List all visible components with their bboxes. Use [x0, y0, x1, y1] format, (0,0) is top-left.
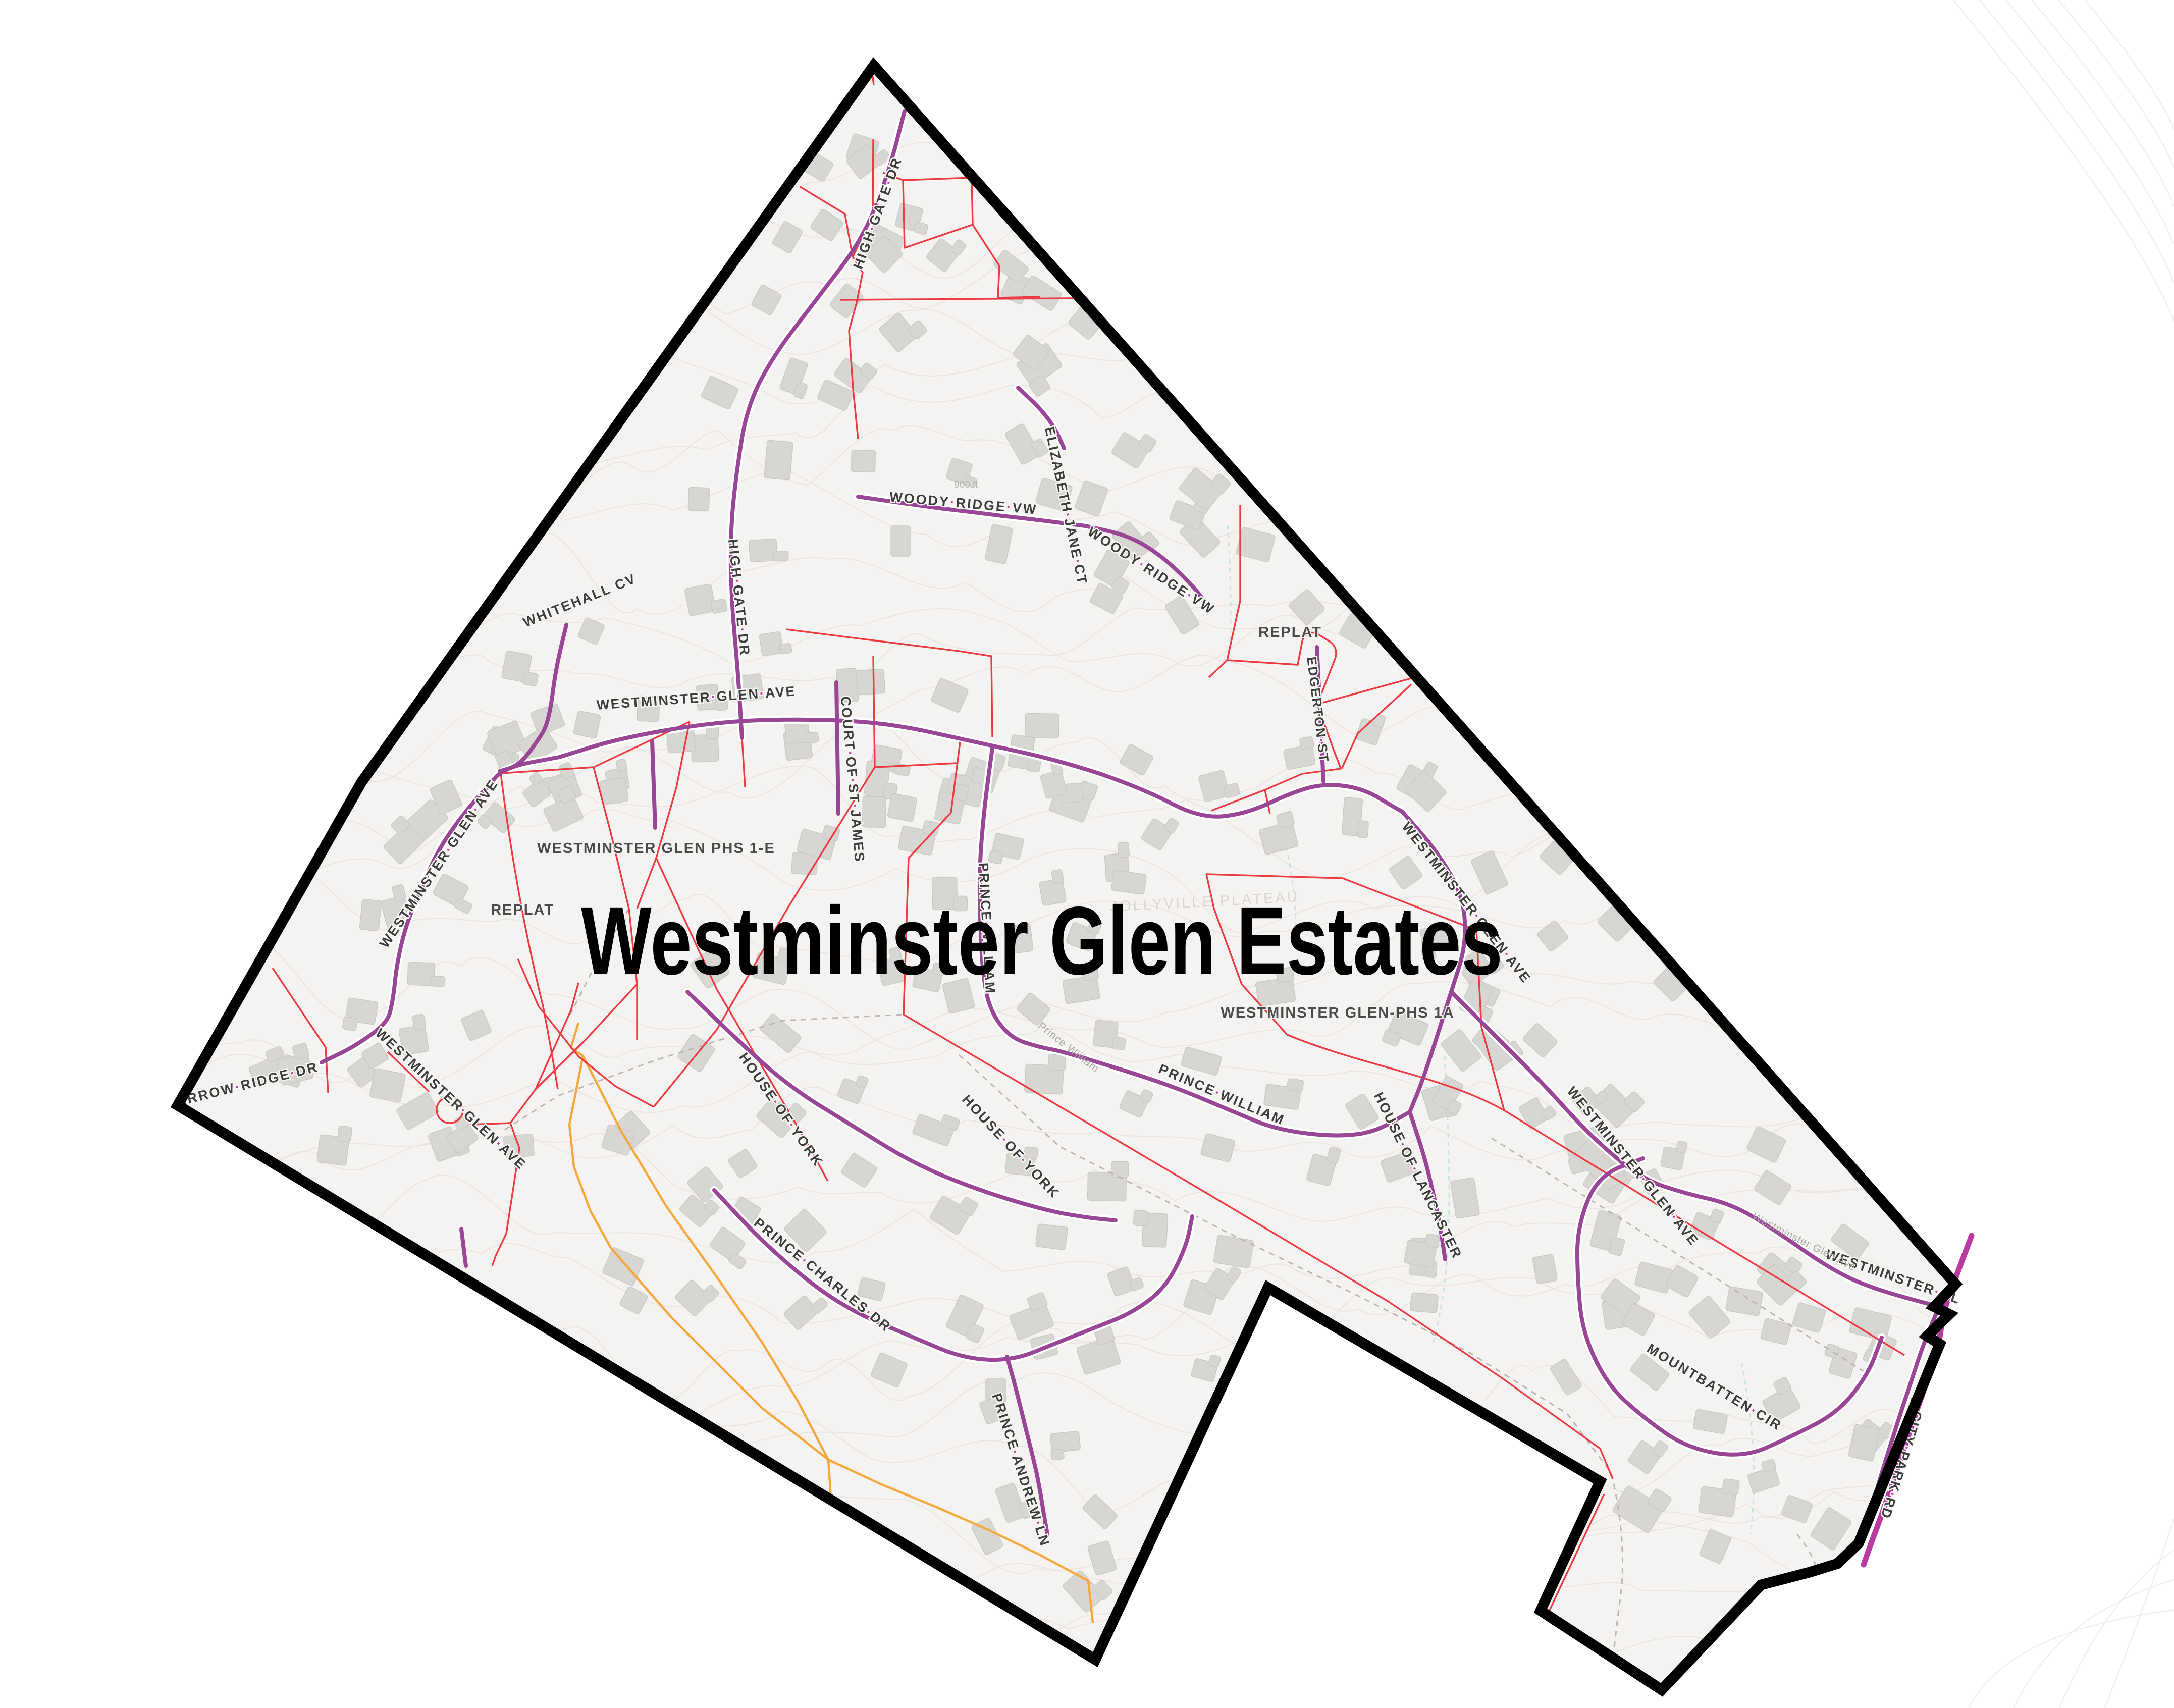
svg-text:WESTMINSTER GLEN-PHS 1A: WESTMINSTER GLEN-PHS 1A [1221, 1005, 1454, 1021]
svg-text:900 ft: 900 ft [954, 479, 978, 490]
svg-text:WESTMINSTER GLEN PHS 1-E: WESTMINSTER GLEN PHS 1-E [537, 840, 775, 857]
svg-text:REPLAT: REPLAT [1258, 624, 1322, 640]
svg-text:REPLAT: REPLAT [491, 902, 554, 918]
svg-text:Westminster Glen Estates: Westminster Glen Estates [581, 886, 1503, 995]
